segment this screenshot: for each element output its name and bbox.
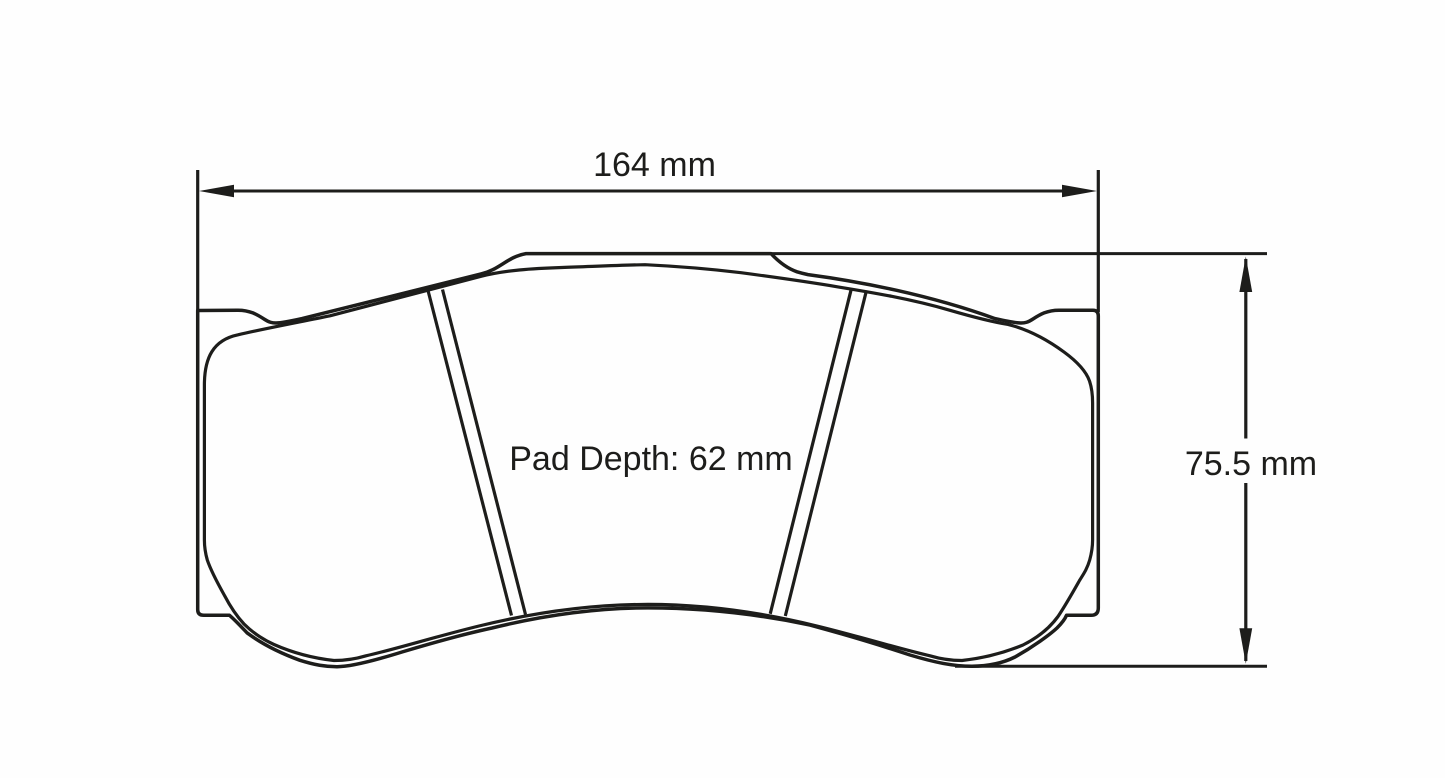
svg-text:75.5 mm: 75.5 mm <box>1185 445 1317 483</box>
svg-text:Pad Depth: 62 mm: Pad Depth: 62 mm <box>509 440 792 478</box>
svg-text:164 mm: 164 mm <box>593 146 716 184</box>
